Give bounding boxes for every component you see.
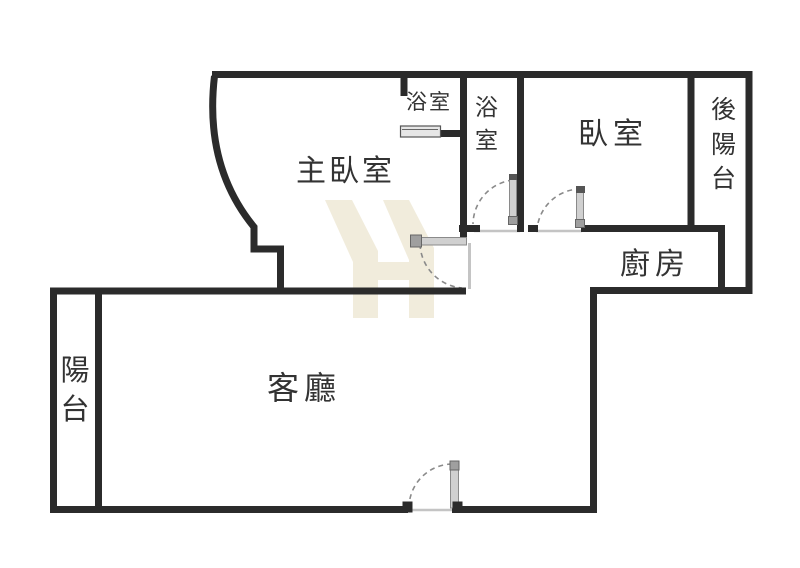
watermark-logo — [325, 200, 434, 318]
bedroom-label: 臥室 — [578, 118, 648, 151]
kitchen-label: 廚房 — [620, 248, 690, 281]
door-leaves — [403, 174, 586, 513]
bedroom-door-arc — [537, 189, 581, 230]
master-bedroom-label: 主臥室 — [296, 155, 395, 188]
master-door-leaf — [417, 238, 467, 246]
bathroom2-door-arc — [473, 180, 513, 224]
master-curved-wall — [213, 76, 281, 293]
rear-balcony-label: 後陽台 — [709, 94, 738, 198]
bathroom1-label: 浴室 — [406, 91, 452, 114]
entry-door-arc — [409, 464, 452, 506]
sink-fixture — [401, 126, 441, 137]
door-arcs — [409, 180, 581, 506]
floor-plan: 主臥室 浴室 浴室 臥室 後陽台 廚房 客廳 陽台 — [0, 0, 800, 568]
floor-plan-drawing — [0, 0, 800, 568]
living-room-label: 客廳 — [267, 371, 341, 406]
bathroom2-label: 浴室 — [473, 91, 500, 158]
balcony-label: 陽台 — [59, 352, 91, 429]
